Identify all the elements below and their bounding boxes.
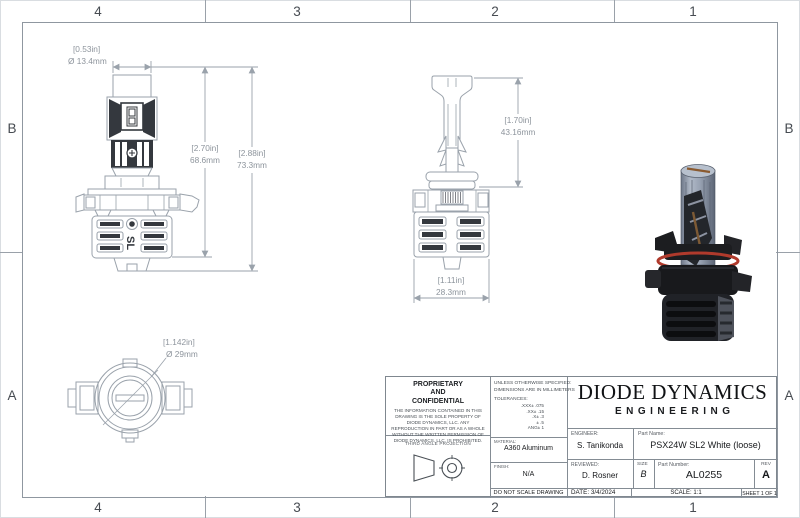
rev-label: REV bbox=[754, 462, 778, 467]
side-view bbox=[413, 76, 489, 269]
front-view-dimensions: [0.53in] Ø 13.4mm [2.70in] 68.6mm [2.88i… bbox=[68, 44, 274, 271]
engineer-value: S. Tanikonda bbox=[567, 441, 633, 450]
dim-side-width-in: [1.11in] bbox=[438, 275, 465, 285]
dim-front-h1-mm: 68.6mm bbox=[190, 155, 220, 165]
dim-front-h2-in: [2.88in] bbox=[238, 148, 265, 158]
sheet-field: SHEET 1 OF 1 bbox=[741, 491, 778, 497]
dim-front-diameter-mm: Ø 13.4mm bbox=[68, 56, 107, 66]
part-name-value: PSX24W SL2 White (loose) bbox=[633, 440, 778, 450]
finish-value: N/A bbox=[490, 471, 567, 478]
size-value: B bbox=[633, 469, 654, 479]
dim-front-diameter-in: [0.53in] bbox=[73, 44, 100, 54]
date-field: DATE: 3/4/2024 bbox=[571, 489, 615, 496]
dim-side-width-mm: 28.3mm bbox=[436, 287, 466, 297]
projection-label: THIRD ANGLE PROJECTION bbox=[386, 441, 490, 446]
dim-side-height-mm: 43.16mm bbox=[501, 127, 536, 137]
company-logo: DIODE DYNAMICS bbox=[567, 380, 778, 405]
title-block: PROPRIETARY AND CONFIDENTIAL THE INFORMA… bbox=[385, 376, 777, 497]
third-angle-projection-icon bbox=[412, 451, 466, 485]
material-value: A360 Aluminum bbox=[490, 445, 567, 452]
dim-side-height-in: [1.70in] bbox=[504, 115, 531, 125]
engineer-label: ENGINEER: bbox=[571, 431, 599, 437]
drawing-sheet: 4 3 2 1 4 3 2 1 B A B A bbox=[0, 0, 800, 518]
dim-bottom-diameter-mm: Ø 29mm bbox=[166, 349, 198, 359]
tolerance-line: .XX± .15 bbox=[502, 409, 544, 414]
specs-line1: UNLESS OTHERWISE SPECIFIED: bbox=[494, 381, 571, 386]
specs-line2: DIMENSIONS ARE IN MILLIMETERS bbox=[494, 388, 575, 393]
company-division: ENGINEERING bbox=[567, 406, 778, 417]
date-label: DATE: bbox=[571, 489, 589, 496]
material-label: MATERIAL: bbox=[494, 439, 516, 444]
dim-front-h2-mm: 73.3mm bbox=[237, 160, 267, 170]
front-view-sl-logo: SL bbox=[124, 236, 136, 250]
part-number-label: Part Number: bbox=[658, 462, 690, 468]
dim-front-h1-in: [2.70in] bbox=[191, 143, 218, 153]
size-label: SIZE bbox=[637, 462, 648, 467]
tolerances-label: TOLERANCES: bbox=[494, 397, 528, 402]
bottom-view: [1.142in] Ø 29mm bbox=[68, 337, 198, 442]
dim-bottom-diameter-in: [1.142in] bbox=[163, 337, 195, 347]
iso-render bbox=[645, 165, 752, 342]
tolerance-line: ± .5 bbox=[502, 420, 544, 425]
tolerance-line: .XXX± .075 bbox=[502, 403, 544, 408]
finish-label: FINISH: bbox=[494, 464, 509, 469]
rev-value: A bbox=[754, 469, 778, 481]
tolerance-line: .X± .3 bbox=[502, 414, 544, 419]
part-number-value: AL0255 bbox=[654, 469, 754, 481]
proprietary-body: THE INFORMATION CONTAINED IN THIS DRAWIN… bbox=[391, 408, 485, 444]
front-view: SL bbox=[76, 75, 199, 271]
tolerance-line: ANG± 1 bbox=[502, 425, 544, 430]
scale-field: SCALE: 1:1 bbox=[631, 490, 741, 496]
do-not-scale-note: DO NOT SCALE DRAWING bbox=[490, 490, 567, 496]
reviewed-label: REVIEWED: bbox=[571, 462, 599, 468]
reviewed-value: D. Rosner bbox=[567, 471, 633, 480]
date-value: 3/4/2024 bbox=[591, 489, 616, 496]
proprietary-heading-text: PROPRIETARY AND CONFIDENTIAL bbox=[408, 381, 468, 406]
proprietary-heading: PROPRIETARY AND CONFIDENTIAL bbox=[386, 381, 490, 406]
part-name-label: Part Name: bbox=[638, 431, 665, 437]
